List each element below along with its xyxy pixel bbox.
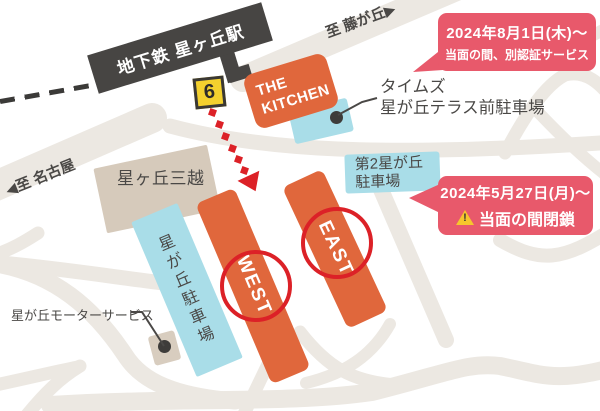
callout-auth: 2024年8月1日(木)～ 当面の間、別認証サービス [438,13,596,71]
mitsukoshi-label: 星ヶ丘三越 [117,164,205,189]
motor-service-label: 星が丘モーターサービス [11,305,154,324]
dai2-parking-label: 第2星が丘 駐車場 [344,151,440,193]
callout-closed-text-row: ! 当面の間閉鎖 [438,206,593,230]
west-highlight-circle [220,250,292,322]
exit-number-box: 6 [192,75,226,109]
warning-exclamation: ! [462,212,468,225]
road [0,233,38,256]
times-leader-dot [330,111,343,124]
road [0,262,172,284]
times-parking-label: タイムズ 星が丘テラス前駐車場 [380,77,545,119]
warning-icon: ! [456,210,474,225]
callout-closed-text: 当面の間閉鎖 [479,206,575,230]
callout-closed-date: 2024年5月27日(月)～ [438,182,593,203]
callout-auth-date: 2024年8月1日(木)～ [438,22,596,43]
callout-auth-text: 当面の間、別認証サービス [438,46,596,63]
east-highlight-circle [301,207,373,279]
map-canvas: 地下鉄 星ヶ丘駅 6 星ヶ丘三越 星 が 丘 駐 車 場 THE KITCHEN… [0,0,600,411]
motor-leader-dot [158,340,171,353]
callout-closed: 2024年5月27日(月)～ ! 当面の間閉鎖 [438,176,593,235]
